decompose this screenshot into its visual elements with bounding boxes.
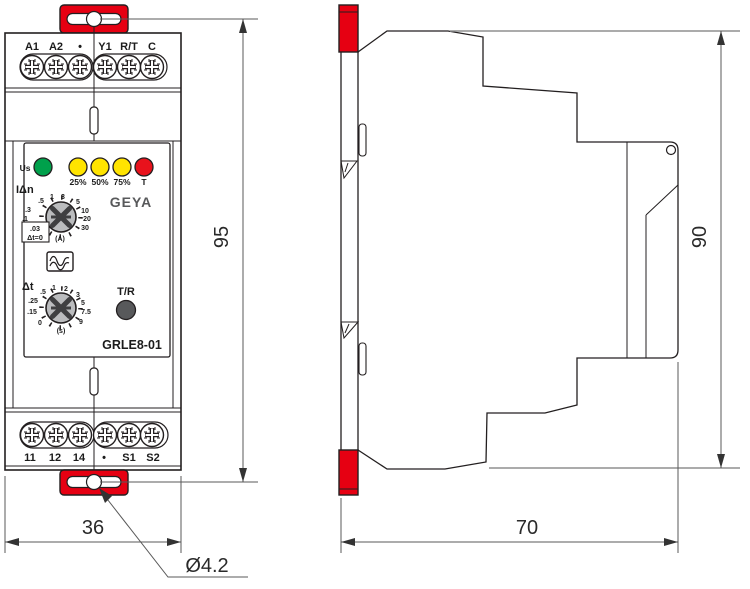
terminal-label: • [78, 41, 82, 53]
power-led [34, 158, 52, 176]
dim-hole-callout: Ø4.2 [99, 488, 248, 577]
dim-side-depth: 70 [341, 362, 678, 553]
terminal-screw [118, 56, 141, 79]
terminal-screw [141, 424, 164, 447]
rail-clip-wedge [341, 322, 358, 338]
terminal-screw [45, 424, 68, 447]
terminal-label: R/T [120, 41, 138, 53]
arrowhead [167, 538, 181, 546]
time-dial-unit: (s) [57, 328, 66, 335]
terminal-label: 11 [24, 452, 36, 464]
rail-mount-wall [341, 52, 358, 450]
terminal-label: S1 [122, 452, 135, 464]
front-panel: Us 25% 50% 75% T IΔn GEYA .5 1 3 5 10 [16, 143, 170, 357]
test-reset-label: T/R [117, 286, 135, 298]
scale-value: 7.5 [81, 309, 91, 316]
test-reset-control: T/R [117, 286, 136, 320]
side-top-mounting-tab [339, 5, 358, 52]
terminal-screw [94, 424, 117, 447]
scale-value: .25 [28, 298, 38, 305]
relay-dimension-drawing: A1 A2 • Y1 R/T C Us [0, 0, 750, 589]
terminal-screw [21, 424, 44, 447]
front-view: A1 A2 • Y1 R/T C Us [5, 5, 181, 495]
scale-value: .5 [40, 289, 46, 296]
terminal-label: Y1 [98, 41, 111, 53]
terminal-label: • [102, 452, 106, 464]
led-75 [113, 158, 131, 176]
power-led-label: Us [20, 163, 31, 173]
side-slot [359, 124, 366, 156]
terminal-screw [21, 56, 44, 79]
led-label: 50% [91, 177, 108, 187]
din-latch-lines [627, 142, 678, 358]
scale-value: 5 [76, 199, 80, 206]
terminal-label: C [148, 41, 156, 53]
dim-value: 70 [516, 517, 538, 539]
rail-clip-wedge [341, 161, 357, 178]
scale-value: 10 [81, 208, 89, 215]
terminal-screw [69, 424, 92, 447]
led-trip [135, 158, 153, 176]
mounting-hole [87, 12, 102, 27]
side-bottom-mounting-tab [339, 450, 358, 495]
test-reset-button [117, 301, 136, 320]
terminal-screw [118, 424, 141, 447]
brand-logo: GEYA [110, 194, 152, 210]
scale-value: 20 [83, 216, 91, 223]
dim-value: Ø4.2 [185, 555, 228, 577]
side-profile-outline [358, 31, 678, 469]
sealing-slot [90, 107, 98, 134]
current-dial-unit: (A) [55, 236, 65, 243]
time-dial-title: Δt [22, 281, 34, 293]
sealing-slot [90, 368, 98, 395]
dim-side-height: 90 [450, 31, 740, 468]
terminal-screw [94, 56, 117, 79]
dim-value: 95 [211, 226, 233, 248]
arrowhead [717, 31, 725, 45]
scale-value: 1 [50, 194, 54, 201]
led-50 [91, 158, 109, 176]
led-25 [69, 158, 87, 176]
scale-value: 9 [79, 319, 83, 326]
scale-value: 1 [52, 285, 56, 292]
terminal-label: A1 [25, 41, 39, 53]
terminal-label: A2 [49, 41, 63, 53]
latch-hole [667, 146, 676, 155]
dim-value: 90 [689, 226, 711, 248]
min-setting-note: Δt=0 [27, 233, 43, 242]
model-number: GRLE8-01 [102, 338, 162, 352]
technical-drawing-page: A1 A2 • Y1 R/T C Us [0, 0, 750, 589]
scale-value: 5 [81, 300, 85, 307]
extension-lines [341, 362, 678, 553]
scale-value: 0 [38, 320, 42, 327]
scale-value: 2 [64, 286, 68, 293]
scale-value: .15 [27, 309, 37, 316]
scale-value: 3 [76, 292, 80, 299]
scale-value: .5 [38, 198, 44, 205]
scale-value: 3 [61, 194, 65, 201]
arrowhead [239, 468, 247, 482]
terminal-screw [45, 56, 68, 79]
led-label: 75% [113, 177, 130, 187]
mounting-tab-shape [339, 450, 358, 495]
scale-value: .3 [25, 207, 31, 214]
terminal-label: 12 [49, 452, 61, 464]
extension-lines [450, 31, 740, 468]
terminal-label: 14 [73, 452, 86, 464]
waveform-icon [47, 252, 73, 271]
arrowhead [341, 538, 355, 546]
terminal-screw [69, 56, 92, 79]
terminal-label: S2 [146, 452, 159, 464]
side-slot [359, 343, 366, 375]
led-label: 25% [69, 177, 86, 187]
arrowhead [717, 454, 725, 468]
arrowhead [664, 538, 678, 546]
scale-value: 30 [81, 225, 89, 232]
dim-value: 36 [82, 517, 104, 539]
current-dial-title: IΔn [16, 184, 34, 196]
side-view [339, 5, 678, 495]
led-label: T [141, 177, 147, 187]
arrowhead [239, 19, 247, 33]
min-setting-value: .03 [30, 224, 40, 233]
mounting-hole [87, 475, 102, 490]
arrowhead [5, 538, 19, 546]
terminal-screw [141, 56, 164, 79]
